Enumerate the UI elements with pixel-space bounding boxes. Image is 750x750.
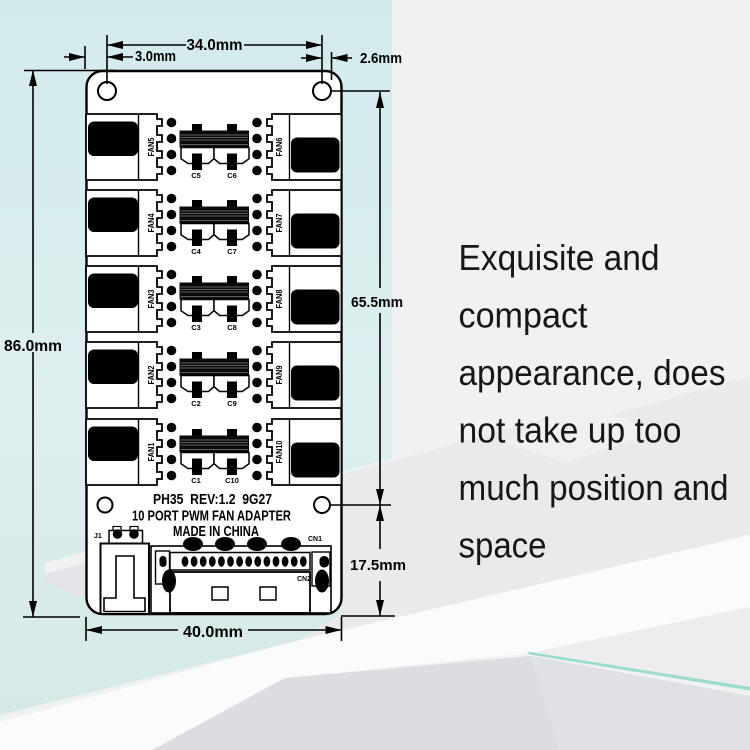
svg-text:86.0mm: 86.0mm xyxy=(4,338,62,355)
svg-text:C4: C4 xyxy=(191,247,201,256)
svg-text:C9: C9 xyxy=(227,399,237,408)
svg-text:appearance, does: appearance, does xyxy=(459,352,726,393)
svg-text:FAN2: FAN2 xyxy=(147,365,156,385)
svg-text:34.0mm: 34.0mm xyxy=(187,37,243,54)
svg-text:Exquisite and: Exquisite and xyxy=(459,237,660,278)
svg-text:FAN5: FAN5 xyxy=(147,137,156,157)
svg-text:65.5mm: 65.5mm xyxy=(351,294,403,311)
svg-text:C8: C8 xyxy=(227,323,237,332)
svg-text:FAN1: FAN1 xyxy=(147,442,156,462)
svg-text:FAN3: FAN3 xyxy=(147,289,156,309)
svg-text:17.5mm: 17.5mm xyxy=(350,557,406,574)
svg-text:C3: C3 xyxy=(191,323,201,332)
svg-text:MADE IN CHINA: MADE IN CHINA xyxy=(173,523,259,540)
svg-text:C5: C5 xyxy=(191,171,201,180)
svg-text:3.0mm: 3.0mm xyxy=(135,48,176,65)
svg-text:FAN4: FAN4 xyxy=(147,213,156,233)
svg-text:FAN9: FAN9 xyxy=(275,365,284,385)
svg-text:C10: C10 xyxy=(225,476,239,485)
svg-text:FAN8: FAN8 xyxy=(275,289,284,309)
svg-text:CN1: CN1 xyxy=(308,536,322,543)
svg-text:C7: C7 xyxy=(227,247,237,256)
svg-text:C1: C1 xyxy=(191,476,201,485)
svg-text:FAN6: FAN6 xyxy=(275,137,284,157)
svg-text:FAN10: FAN10 xyxy=(275,440,284,464)
svg-text:much position and: much position and xyxy=(459,467,729,508)
svg-text:C6: C6 xyxy=(227,171,237,180)
svg-text:PH35 REV:1.2 9G27: PH35 REV:1.2 9G27 xyxy=(153,491,272,508)
svg-text:C2: C2 xyxy=(191,399,201,408)
svg-text:compact: compact xyxy=(459,295,588,336)
svg-text:FAN7: FAN7 xyxy=(275,213,284,233)
svg-text:not take up too: not take up too xyxy=(459,410,682,451)
svg-text:40.0mm: 40.0mm xyxy=(183,624,243,641)
svg-text:CN2: CN2 xyxy=(297,576,311,583)
svg-text:space: space xyxy=(459,525,547,566)
svg-text:2.6mm: 2.6mm xyxy=(360,50,402,67)
svg-text:J1: J1 xyxy=(94,533,102,540)
svg-text:10 PORT PWM FAN ADAPTER: 10 PORT PWM FAN ADAPTER xyxy=(132,508,291,525)
